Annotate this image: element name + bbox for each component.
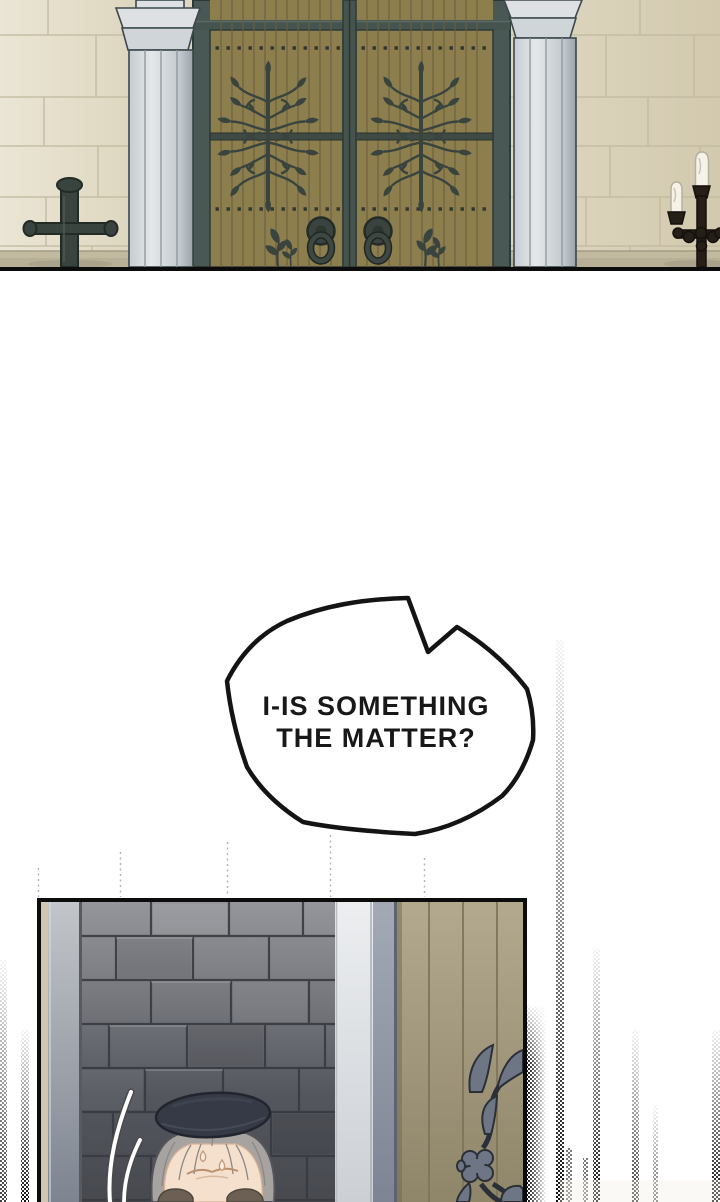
bubble-line-2: THE MATTER?: [245, 722, 507, 754]
ornament-flower: [457, 1150, 493, 1182]
left-beige-trim: [41, 902, 48, 1202]
right-pillar: [504, 0, 582, 267]
white-pillar: [335, 902, 373, 1202]
bottom-right-tint: [560, 1180, 720, 1202]
blue-gray-strip: [373, 902, 397, 1202]
wooden-gate: [397, 902, 523, 1202]
speech-bubble-text: I-IS SOMETHING THE MATTER?: [245, 690, 507, 754]
panel-church-door: [0, 0, 720, 271]
comic-page: I-IS SOMETHING THE MATTER?: [0, 0, 720, 1202]
cathedral-doors: [193, 0, 510, 267]
bubble-line-1: I-IS SOMETHING: [245, 690, 507, 722]
panel-courtyard: [37, 898, 527, 1202]
butler: [151, 1090, 274, 1202]
left-gray-pillar: [48, 902, 82, 1202]
left-pillar: [116, 0, 200, 267]
panel-border-bottom: [0, 267, 720, 271]
